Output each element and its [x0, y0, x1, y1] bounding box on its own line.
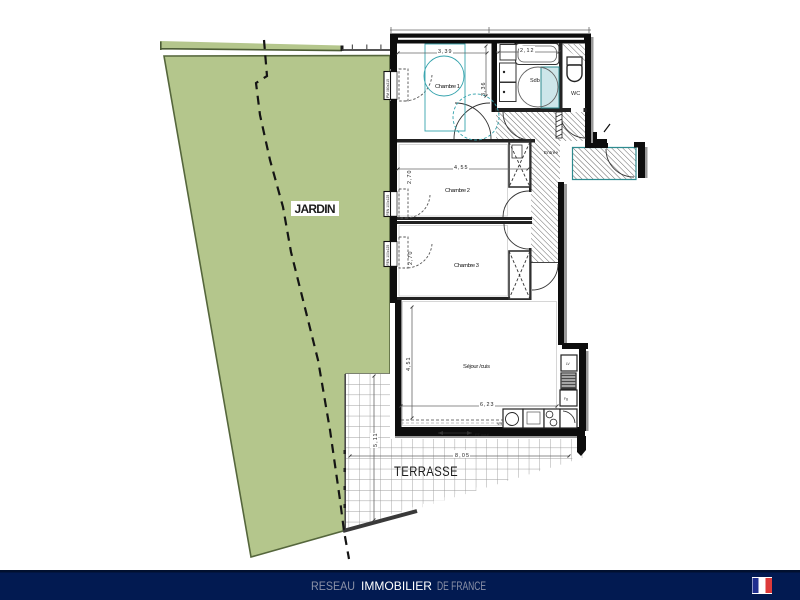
- svg-text:DE FRANCE: DE FRANCE: [437, 579, 486, 593]
- svg-text:VR: VR: [497, 422, 503, 426]
- svg-text:Chambre 1: Chambre 1: [435, 84, 460, 90]
- svg-text:Chambre 2: Chambre 2: [445, 188, 470, 194]
- svg-text:5,11: 5,11: [373, 434, 379, 448]
- svg-text:JARDIN: JARDIN: [295, 202, 336, 216]
- svg-text:6,23: 6,23: [480, 402, 494, 408]
- svg-text:PT coul: PT coul: [475, 432, 489, 437]
- svg-text:WC: WC: [571, 91, 580, 97]
- svg-text:8,05: 8,05: [455, 453, 469, 459]
- svg-text:FEN 100x125: FEN 100x125: [386, 245, 390, 266]
- svg-text:3,36: 3,36: [481, 83, 487, 97]
- svg-text:Chambre 3: Chambre 3: [454, 263, 479, 269]
- svg-text:2,70: 2,70: [407, 171, 413, 185]
- svg-text:Fg: Fg: [564, 397, 568, 401]
- svg-text:TERRASSE: TERRASSE: [394, 464, 458, 479]
- svg-text:Entrée: Entrée: [544, 150, 558, 155]
- svg-text:Séjour /cuis: Séjour /cuis: [463, 364, 490, 370]
- svg-text:FEN 100x125: FEN 100x125: [386, 195, 390, 216]
- svg-text:2,12: 2,12: [520, 48, 534, 54]
- svg-text:3,39: 3,39: [438, 49, 452, 55]
- svg-text:4,51: 4,51: [406, 358, 412, 372]
- svg-text:PM 080x215: PM 080x215: [386, 79, 390, 98]
- svg-text:IMMOBILIER: IMMOBILIER: [361, 579, 432, 593]
- svg-text:RESEAU: RESEAU: [311, 579, 355, 593]
- svg-text:Sdb: Sdb: [530, 78, 540, 84]
- svg-text:2,70: 2,70: [408, 252, 414, 266]
- svg-text:4,55: 4,55: [454, 165, 468, 171]
